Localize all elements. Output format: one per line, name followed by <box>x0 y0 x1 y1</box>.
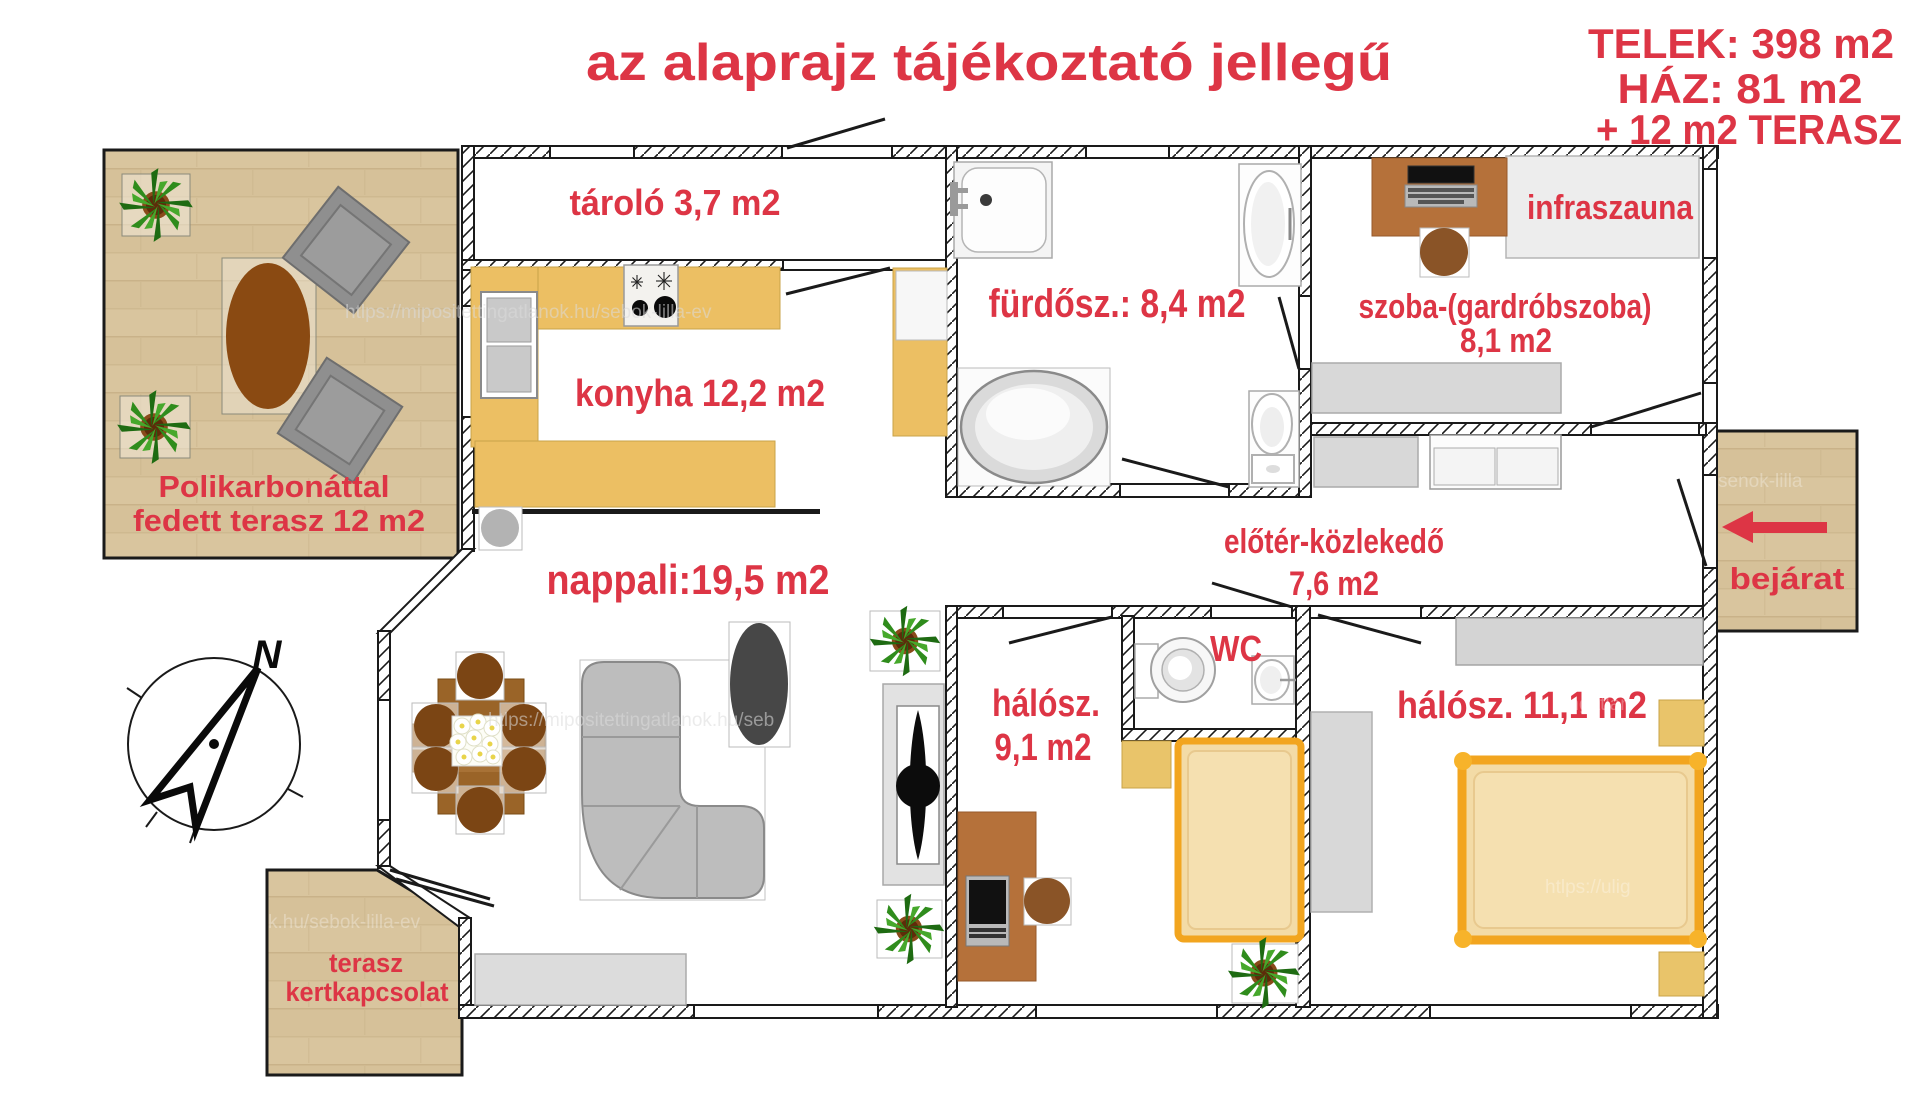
svg-text:htlps://mipositettingatlanok.h: htlps://mipositettingatlanok.hu/sebok-li… <box>345 302 712 323</box>
svg-text:8,1 m2: 8,1 m2 <box>1460 322 1552 360</box>
svg-text:htlps://mipositettingatlanok.h: htlps://mipositettingatlanok.hu/seb <box>488 710 774 731</box>
svg-text:bejárat: bejárat <box>1730 561 1845 596</box>
svg-text:tároló 3,7 m2: tároló 3,7 m2 <box>570 182 781 223</box>
svg-text:hálósz.: hálósz. <box>992 683 1100 725</box>
svg-text:terasz: terasz <box>329 948 403 978</box>
svg-text:előtér-közlekedő: előtér-közlekedő <box>1224 523 1444 561</box>
svg-text:7,6 m2: 7,6 m2 <box>1289 565 1379 603</box>
svg-text:TELEK: 398 m2: TELEK: 398 m2 <box>1588 20 1894 67</box>
svg-text:infraszauna: infraszauna <box>1527 189 1694 227</box>
svg-text:konyha 12,2 m2: konyha 12,2 m2 <box>575 373 825 415</box>
svg-text:9,1 m2: 9,1 m2 <box>995 727 1092 769</box>
svg-text:az alaprajz tájékoztató jelleg: az alaprajz tájékoztató jellegű <box>586 34 1392 92</box>
svg-text:senok-lilla: senok-lilla <box>1718 471 1803 492</box>
svg-text:Polikarbonáttal: Polikarbonáttal <box>159 469 390 504</box>
svg-text:szoba-(gardróbszoba): szoba-(gardróbszoba) <box>1359 288 1652 326</box>
svg-text:fürdősz.: 8,4 m2: fürdősz.: 8,4 m2 <box>989 282 1246 326</box>
svg-text:WC: WC <box>1210 628 1262 669</box>
svg-text:lingatlan: lingatlan <box>1560 694 1631 715</box>
svg-text:nappali:19,5 m2: nappali:19,5 m2 <box>547 556 830 603</box>
svg-text:kertkapcsolat: kertkapcsolat <box>286 977 449 1007</box>
svg-text:htlps://ulig: htlps://ulig <box>1545 877 1631 898</box>
svg-text:N: N <box>253 633 283 677</box>
svg-text:HÁZ: 81 m2: HÁZ: 81 m2 <box>1618 65 1863 112</box>
svg-text:fedett terasz 12 m2: fedett terasz 12 m2 <box>133 503 425 538</box>
svg-text:k.hu/sebok-lilla-ev: k.hu/sebok-lilla-ev <box>268 912 421 933</box>
